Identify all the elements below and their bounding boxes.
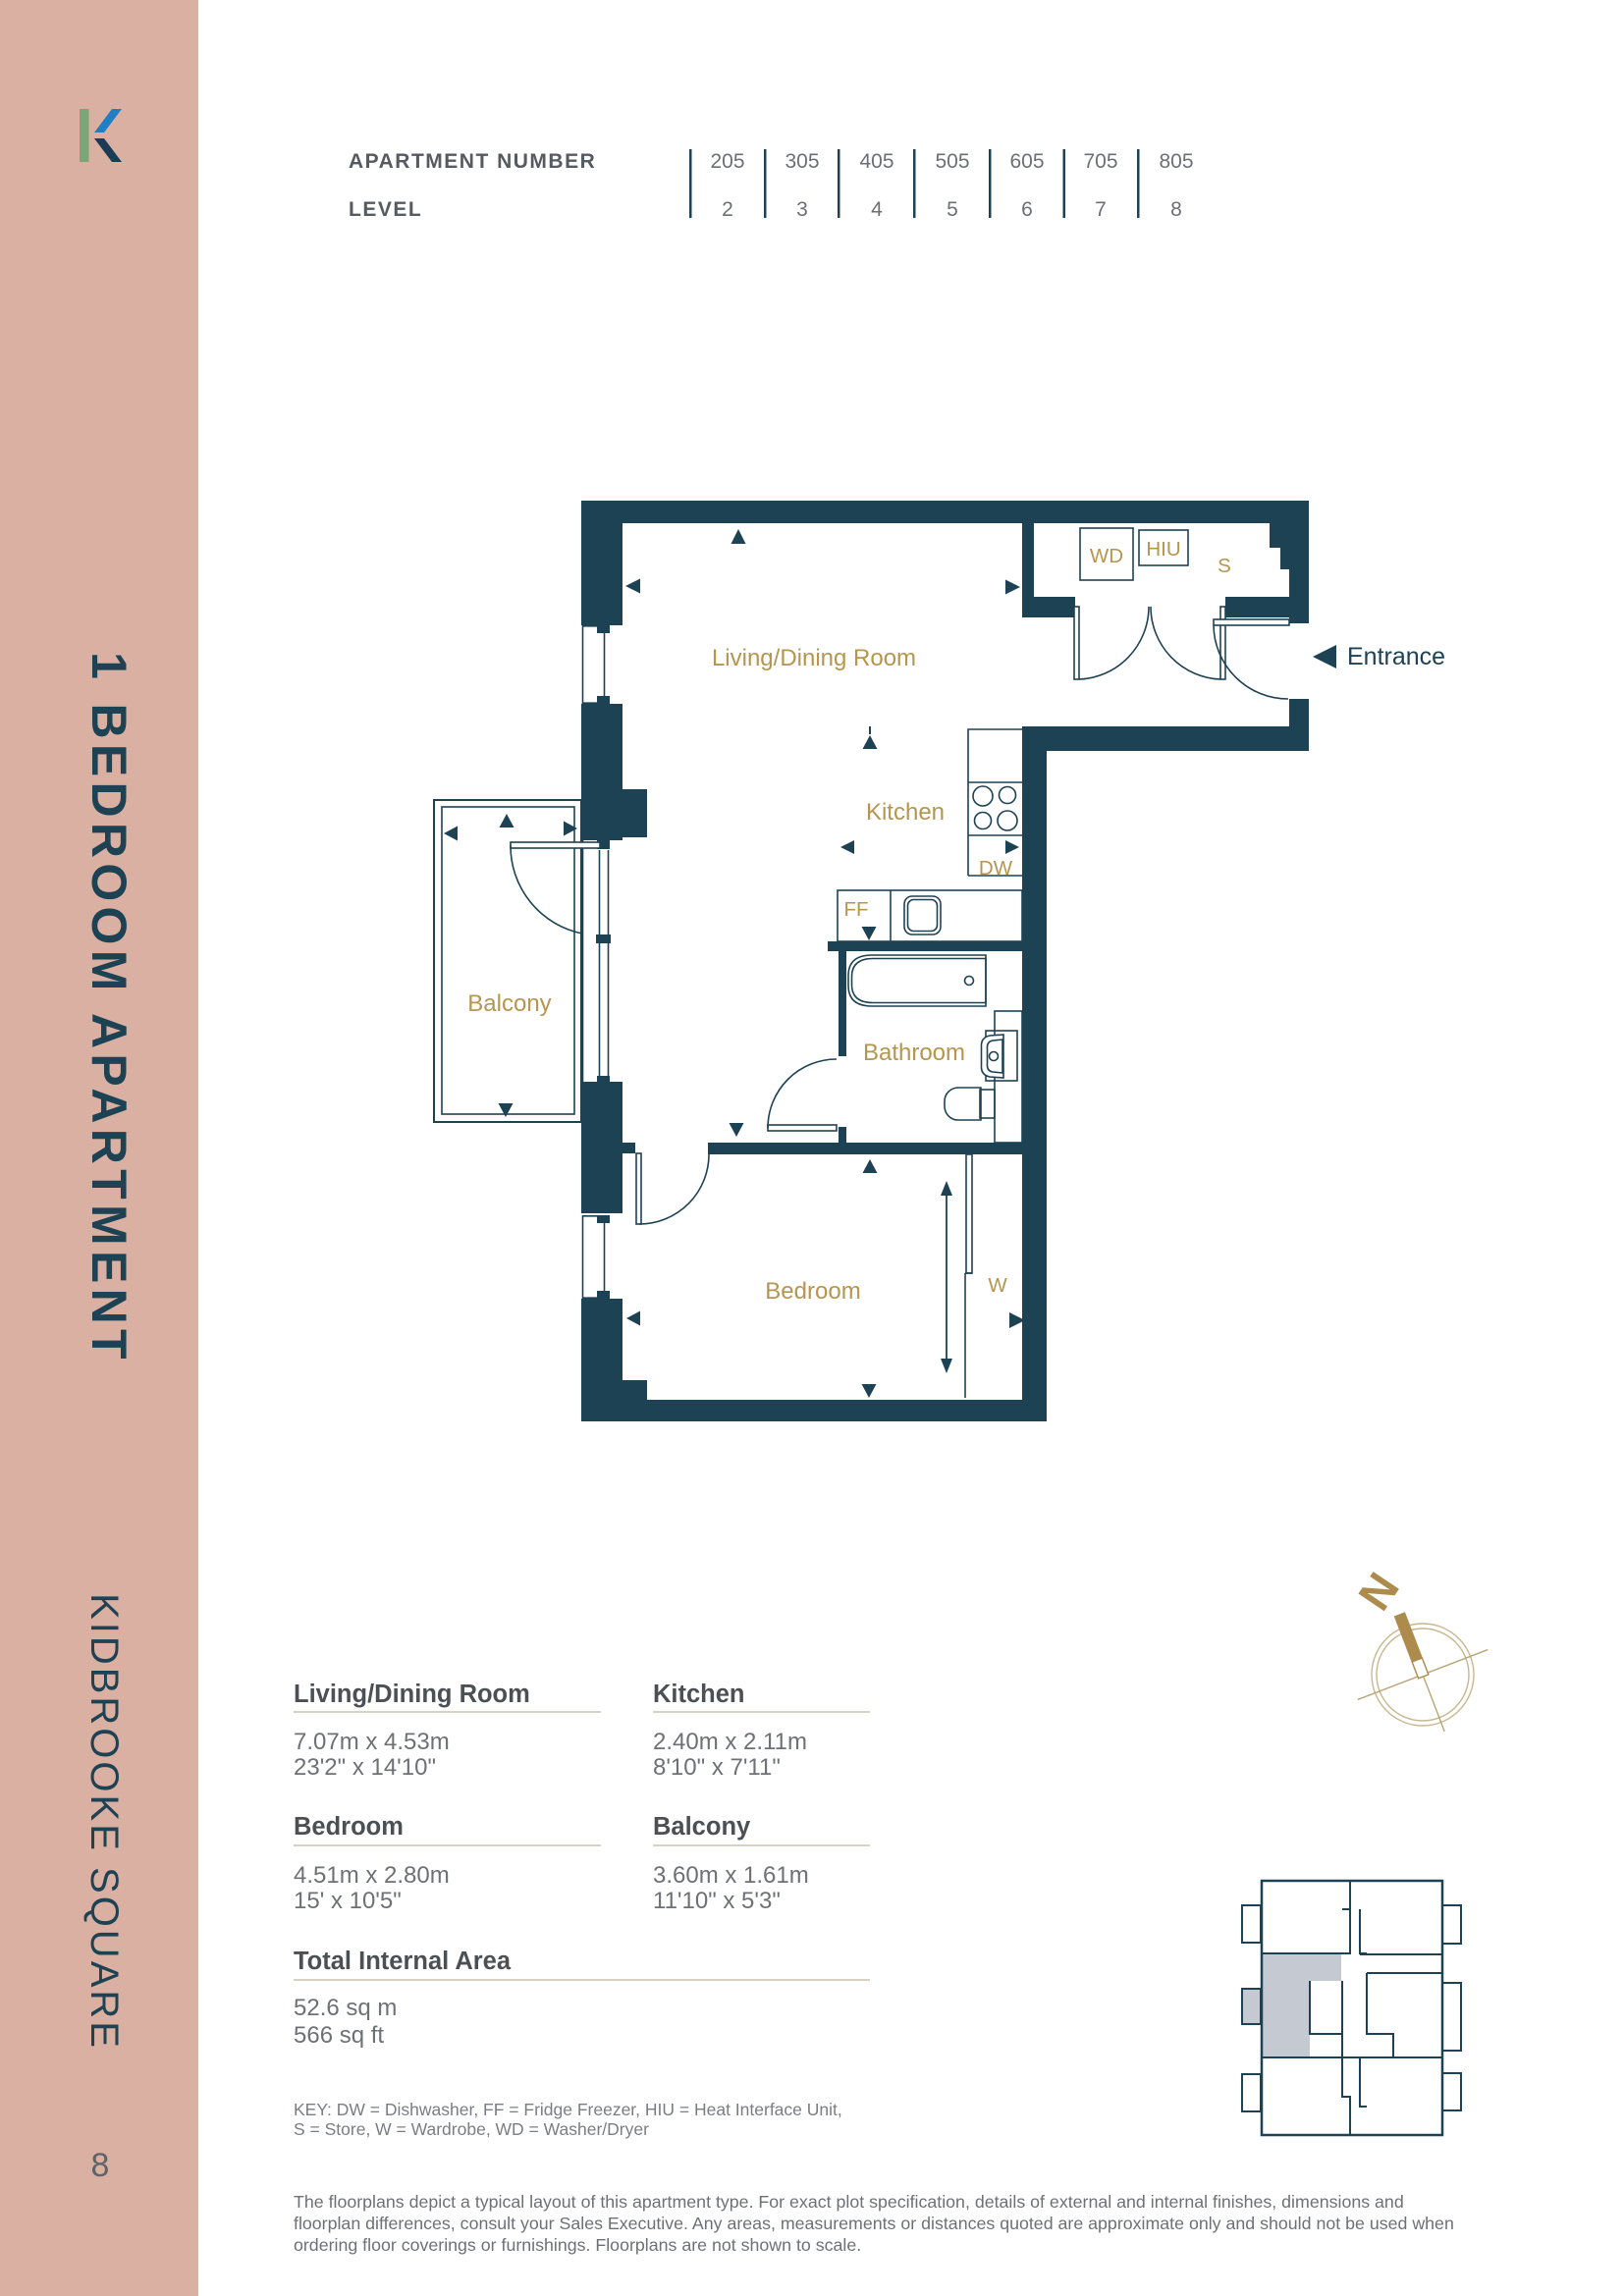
svg-text:8: 8: [91, 2147, 110, 2184]
svg-text:FF: FF: [843, 898, 868, 921]
svg-text:LEVEL: LEVEL: [349, 198, 422, 221]
svg-text:KEY: DW = Dishwasher, FF = Fri: KEY: DW = Dishwasher, FF = Fridge Freeze…: [294, 2100, 842, 2119]
svg-text:Living/Dining Room: Living/Dining Room: [294, 1681, 530, 1708]
svg-text:3: 3: [796, 198, 808, 221]
svg-text:WD: WD: [1090, 545, 1123, 567]
svg-text:Bathroom: Bathroom: [863, 1040, 965, 1066]
svg-text:2: 2: [722, 198, 733, 221]
svg-text:The floorplans depict a typica: The floorplans depict a typical layout o…: [294, 2192, 1404, 2212]
svg-text:305: 305: [785, 150, 819, 173]
svg-text:605: 605: [1009, 150, 1044, 173]
svg-text:4: 4: [871, 198, 883, 221]
svg-text:3.60m x 1.61m: 3.60m x 1.61m: [653, 1862, 809, 1889]
svg-text:4.51m x 2.80m: 4.51m x 2.80m: [294, 1862, 450, 1889]
svg-text:ordering floor coverings or fu: ordering floor coverings or furnishings.…: [294, 2235, 861, 2255]
svg-text:Bedroom: Bedroom: [294, 1813, 404, 1841]
svg-text:7: 7: [1095, 198, 1107, 221]
svg-text:23'2" x 14'10": 23'2" x 14'10": [294, 1754, 436, 1781]
svg-text:N: N: [1348, 1564, 1409, 1620]
svg-text:805: 805: [1159, 150, 1193, 173]
svg-text:KIDBROOKE SQUARE: KIDBROOKE SQUARE: [82, 1593, 126, 2051]
svg-text:floorplan differences, consult: floorplan differences, consult your Sale…: [294, 2214, 1454, 2233]
svg-text:DW: DW: [979, 857, 1013, 880]
svg-text:11'10" x 5'3": 11'10" x 5'3": [653, 1888, 781, 1914]
svg-text:505: 505: [935, 150, 969, 173]
svg-text:8'10" x 7'11": 8'10" x 7'11": [653, 1754, 781, 1781]
svg-text:566 sq ft: 566 sq ft: [294, 2022, 384, 2049]
svg-text:1 BEDROOM APARTMENT: 1 BEDROOM APARTMENT: [81, 652, 136, 1364]
svg-text:405: 405: [859, 150, 893, 173]
svg-text:7.07m x 4.53m: 7.07m x 4.53m: [294, 1729, 450, 1755]
svg-text:HIU: HIU: [1146, 538, 1180, 561]
svg-text:Entrance: Entrance: [1347, 643, 1445, 670]
svg-text:205: 205: [710, 150, 744, 173]
svg-text:Total Internal Area: Total Internal Area: [294, 1948, 512, 1975]
svg-text:Kitchen: Kitchen: [866, 799, 945, 826]
svg-text:Bedroom: Bedroom: [765, 1278, 860, 1305]
svg-text:15' x 10'5": 15' x 10'5": [294, 1888, 402, 1914]
svg-text:705: 705: [1083, 150, 1117, 173]
svg-text:2.40m x 2.11m: 2.40m x 2.11m: [653, 1729, 807, 1755]
svg-text:5: 5: [947, 198, 958, 221]
svg-text:Living/Dining Room: Living/Dining Room: [712, 645, 916, 671]
svg-text:Balcony: Balcony: [467, 990, 551, 1017]
svg-text:S: S: [1218, 555, 1231, 577]
svg-text:Balcony: Balcony: [653, 1813, 751, 1841]
svg-text:52.6 sq m: 52.6 sq m: [294, 1995, 397, 2021]
svg-text:6: 6: [1021, 198, 1033, 221]
svg-text:W: W: [988, 1274, 1007, 1297]
svg-text:S = Store, W = Wardrobe, WD =: S = Store, W = Wardrobe, WD = Washer/Dry…: [294, 2119, 649, 2139]
svg-text:APARTMENT NUMBER: APARTMENT NUMBER: [349, 150, 596, 173]
svg-text:8: 8: [1170, 198, 1182, 221]
svg-text:Kitchen: Kitchen: [653, 1681, 745, 1708]
